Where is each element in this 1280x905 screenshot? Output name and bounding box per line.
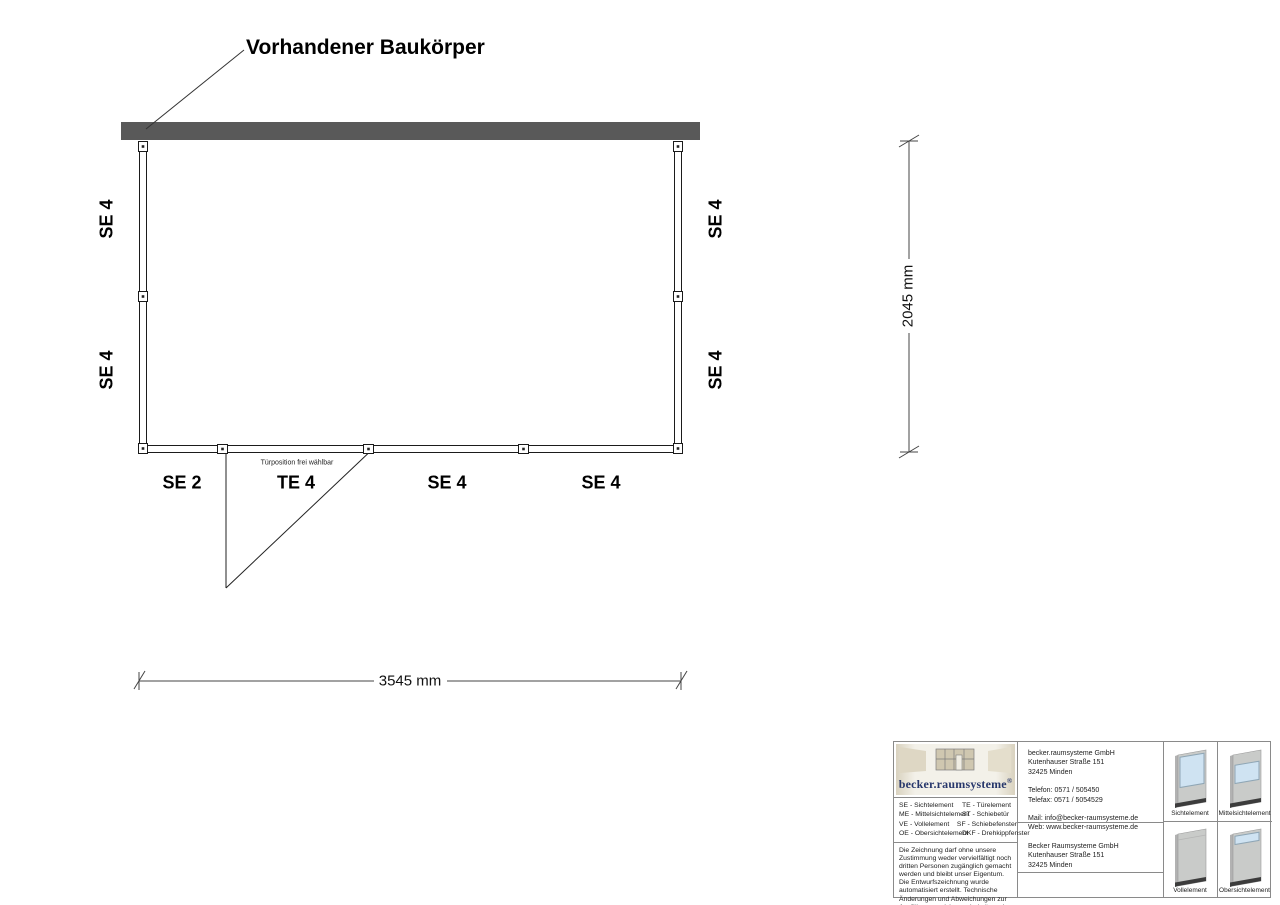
- title-block: becker.raumsysteme® SE - SichtelementTE …: [893, 741, 1271, 898]
- contact-fax: Telefax: 0571 / 5054529: [1028, 796, 1163, 805]
- panel-label: Obersichtelement: [1219, 886, 1270, 895]
- wall-label-bottom-4: SE 4: [581, 473, 620, 494]
- owner-city: 32425 Minden: [1028, 861, 1163, 870]
- legend-entry: SF - Schiebefenster: [957, 820, 1017, 829]
- legend-entry: VE - Vollelement: [899, 820, 957, 829]
- legend-entry: TE - Türelement: [962, 801, 1011, 810]
- wall-label-right-top: SE 4: [706, 199, 727, 238]
- drawing-sheet: Vorhandener Baukörper SE 4 SE 4 SE 4 SE …: [0, 0, 1280, 905]
- logo-wordmark: becker.raumsysteme®: [896, 775, 1015, 790]
- wall-label-left-top: SE 4: [97, 199, 118, 238]
- panel-cell-obersichtelement: Obersichtelement: [1217, 821, 1272, 898]
- contact-street: Kutenhauser Straße 151: [1028, 758, 1163, 767]
- legend-entry: ST - Schiebetür: [962, 810, 1009, 819]
- panel-label: Mittelsichtelement: [1218, 809, 1270, 818]
- company-contact: becker.raumsysteme GmbH Kutenhauser Stra…: [1017, 742, 1163, 822]
- panel-cell-sichtelement: Sichtelement: [1163, 742, 1217, 821]
- wall-label-bottom-2: TE 4: [277, 473, 315, 494]
- legend-entry: SE - Sichtelement: [899, 801, 962, 810]
- title-block-divider: [1017, 872, 1163, 873]
- panel-label: Vollelement: [1173, 886, 1207, 895]
- panel-cell-mittelsichtelement: Mittelsichtelement: [1217, 742, 1272, 821]
- legend-entry: ME - Mittelsichtelement: [899, 810, 962, 819]
- dimension-height-label: 2045 mm: [900, 265, 917, 328]
- sichtelement-icon: [1168, 747, 1212, 811]
- owner-company: Becker Raumsysteme GmbH: [1028, 842, 1163, 851]
- wall-connectors: [139, 142, 683, 454]
- obersichtelement-icon: [1223, 826, 1267, 890]
- wall-label-right-bottom: SE 4: [706, 350, 727, 389]
- drawing-title: Vorhandener Baukörper: [246, 36, 485, 60]
- logo-registered-mark: ®: [1007, 777, 1012, 785]
- existing-building-bar: [121, 122, 700, 140]
- wall-outlines: [140, 142, 682, 454]
- contact-company: becker.raumsysteme GmbH: [1028, 749, 1163, 758]
- logo-text: becker.raumsysteme: [899, 777, 1007, 791]
- connector-dots: [142, 145, 680, 450]
- logo-cabin-illustration: [896, 744, 1015, 774]
- panel-cell-vollelement: Vollelement: [1163, 821, 1217, 898]
- wall-label-left-bottom: SE 4: [97, 350, 118, 389]
- copyright-disclaimer: Die Zeichnung darf ohne unsere Zustimmun…: [894, 842, 1017, 899]
- company-logo: becker.raumsysteme®: [896, 744, 1015, 795]
- company-owner: Becker Raumsysteme GmbH Kutenhauser Stra…: [1017, 822, 1163, 872]
- door-position-note: Türposition frei wählbar: [261, 460, 334, 467]
- owner-street: Kutenhauser Straße 151: [1028, 851, 1163, 860]
- vollelement-icon: [1168, 826, 1212, 890]
- mittelsichtelement-icon: [1223, 747, 1267, 811]
- contact-city: 32425 Minden: [1028, 768, 1163, 777]
- contact-phone: Telefon: 0571 / 505450: [1028, 786, 1163, 795]
- wall-label-bottom-1: SE 2: [162, 473, 201, 494]
- title-leader-line: [146, 50, 244, 129]
- wall-label-bottom-3: SE 4: [427, 473, 466, 494]
- legend-entry: OE - Obersichtelement: [899, 829, 962, 838]
- dimension-width-label: 3545 mm: [379, 673, 442, 690]
- panel-label: Sichtelement: [1171, 809, 1209, 818]
- element-legend: SE - SichtelementTE - Türelement ME - Mi…: [894, 797, 1017, 842]
